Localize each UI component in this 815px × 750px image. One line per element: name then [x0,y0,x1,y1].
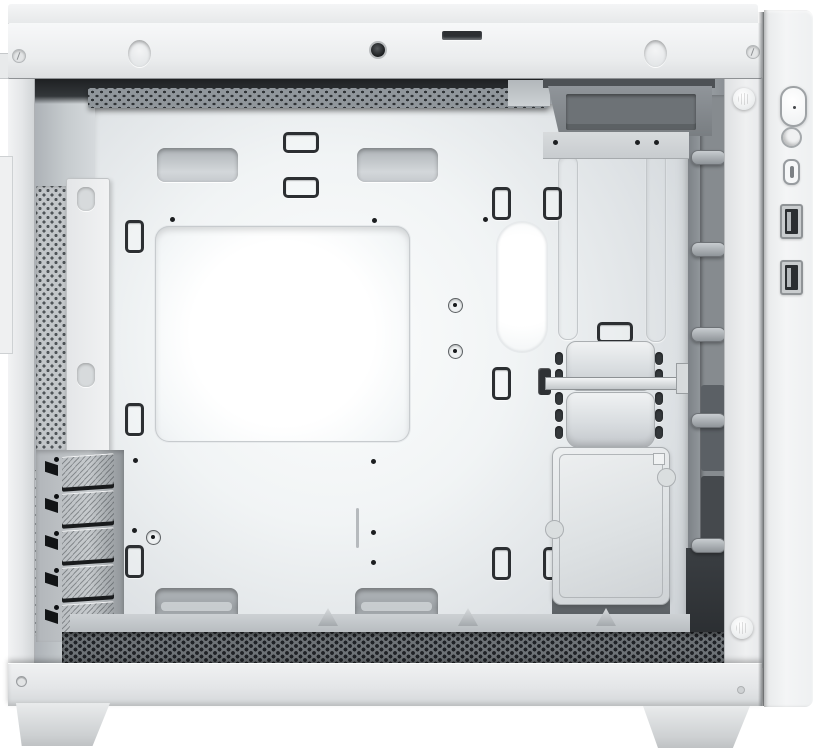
cable-tie-clip [492,187,511,220]
cable-tie-clip [125,403,144,436]
ringed-screw-hole [146,530,161,545]
expansion-slot-screw-hole [54,457,59,462]
drive-retention-bar [545,377,690,390]
ringed-screw-hole [448,298,463,313]
top-panel-edge [8,4,758,24]
expansion-slot-screw-hole [54,568,59,573]
standoff-hole [170,217,175,222]
cpu-cooler-cutout [155,226,410,442]
side-panel-edge [0,156,13,354]
screw-hole [635,140,640,145]
expansion-slot-cover [62,564,114,599]
tray-slot-mark [356,508,359,548]
expansion-slot-cover [62,527,114,562]
thumbscrew [731,617,753,639]
cutout-inner-shelf [161,602,232,611]
rear-fan-mesh [36,186,68,452]
top-bar-screw-hole [371,43,385,57]
usb-a-port-1 [780,204,803,239]
top-bar-oval-hole [644,40,667,67]
front-inner-pocket [701,385,725,471]
drive-tray [566,392,655,448]
expansion-slot-screw-hole [54,494,59,499]
bottom-rail [8,663,762,706]
rear-fan-bracket [66,178,110,460]
ringed-screw-hole [448,344,463,359]
cable-cutout-top [157,148,238,182]
bottom-dust-mesh [62,632,750,664]
drive-mount-slot [555,392,563,405]
cable-tie-clip [492,547,511,580]
rail-screw [16,676,27,687]
standoff-hole [371,530,376,535]
screw-hole [654,140,659,145]
top-bar-latch-slot [442,31,482,40]
cable-tie-clip [492,367,511,400]
cable-channel-groove [558,155,578,340]
front-fan-standoff [691,242,726,257]
usb-c-port [783,159,800,185]
front-fan-standoff [691,413,726,428]
top-vent-mesh [88,88,548,108]
cutout-inner-shelf [361,602,432,611]
cable-tie-clip [597,322,633,343]
drive-mount-slot [555,426,563,439]
thumbscrew [733,88,755,110]
power-button [780,86,807,127]
expansion-slot-cover [62,453,114,488]
cable-cutout-top [357,148,438,182]
bracket-slot [77,187,95,211]
cable-cutout-vertical [497,222,547,352]
front-fan-standoff [691,538,726,553]
top-bar-oval-hole [128,40,151,67]
reset-button [781,127,802,148]
front-fan-standoff [691,150,726,165]
case-foot-left [13,703,110,746]
cable-tie-clip [125,545,144,578]
case-foot-right [643,706,750,748]
standoff-hole [132,528,137,533]
rail-pin [737,686,745,694]
expansion-slot-screw-hole [54,605,59,610]
top-bracket-cavity [566,94,696,130]
drive-mount-slot [655,392,663,405]
front-fan-standoff [691,327,726,342]
cable-tie-clip [543,187,562,220]
ssd-mount-plate [552,447,670,605]
ssd-plate-notch [545,520,564,539]
top-bracket-shelf [543,132,689,159]
standoff-hole [371,459,376,464]
frame-screw [12,49,26,63]
bracket-slot [77,363,95,387]
ssd-plate-notch [657,468,676,487]
cable-tie-clip [283,132,319,153]
standoff-hole [483,217,488,222]
drive-mount-slot [555,352,563,365]
standoff-hole [133,458,138,463]
expansion-slot-screw-hole [54,531,59,536]
top-frame-bar [8,23,762,79]
usb-a-port-2 [780,260,803,295]
cable-tie-clip [125,220,144,253]
standoff-hole [372,218,377,223]
standoff-hole [371,560,376,565]
cable-channel-groove [646,150,666,342]
screw-hole [553,140,558,145]
pc-case-photo [0,0,815,750]
cable-tie-clip [283,177,319,198]
drive-mount-slot [655,426,663,439]
drive-mount-slot [555,409,563,422]
ssd-plate-tab [653,453,665,465]
drive-mount-slot [655,409,663,422]
drive-mount-slot [655,352,663,365]
expansion-slot-cover [62,490,114,525]
